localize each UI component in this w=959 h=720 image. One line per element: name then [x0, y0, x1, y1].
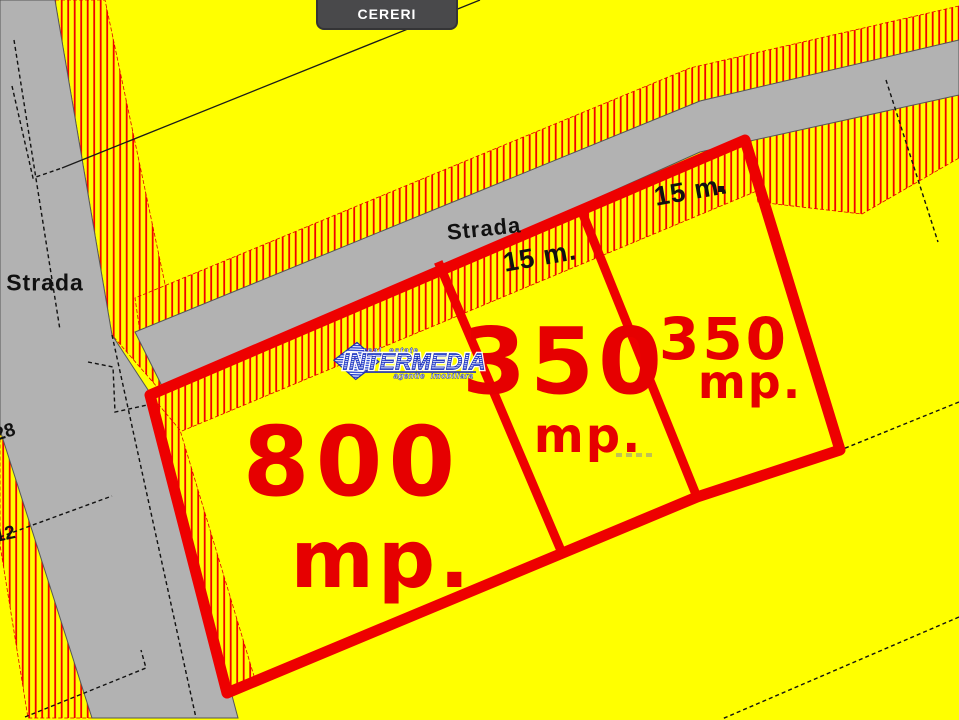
- watermark-tagline-bottom: agentie imobiliara: [393, 372, 473, 381]
- road-label-strada-left: Strada: [6, 270, 84, 297]
- watermark-brand: INTERMEDIA: [343, 349, 486, 375]
- parcel-1-unit: mp.: [290, 520, 473, 600]
- cereri-button[interactable]: CERERI: [316, 0, 458, 30]
- cadastral-map: Strada Strada 15 m. 15 m. 28 12 800 mp. …: [0, 0, 959, 720]
- fine-print-marks: [616, 453, 654, 457]
- parcel-1-area: 800: [243, 414, 461, 510]
- parcel-3-unit: mp.: [698, 359, 802, 405]
- agency-watermark: real estate INTERMEDIA INTERMEDIA agenti…: [330, 313, 645, 405]
